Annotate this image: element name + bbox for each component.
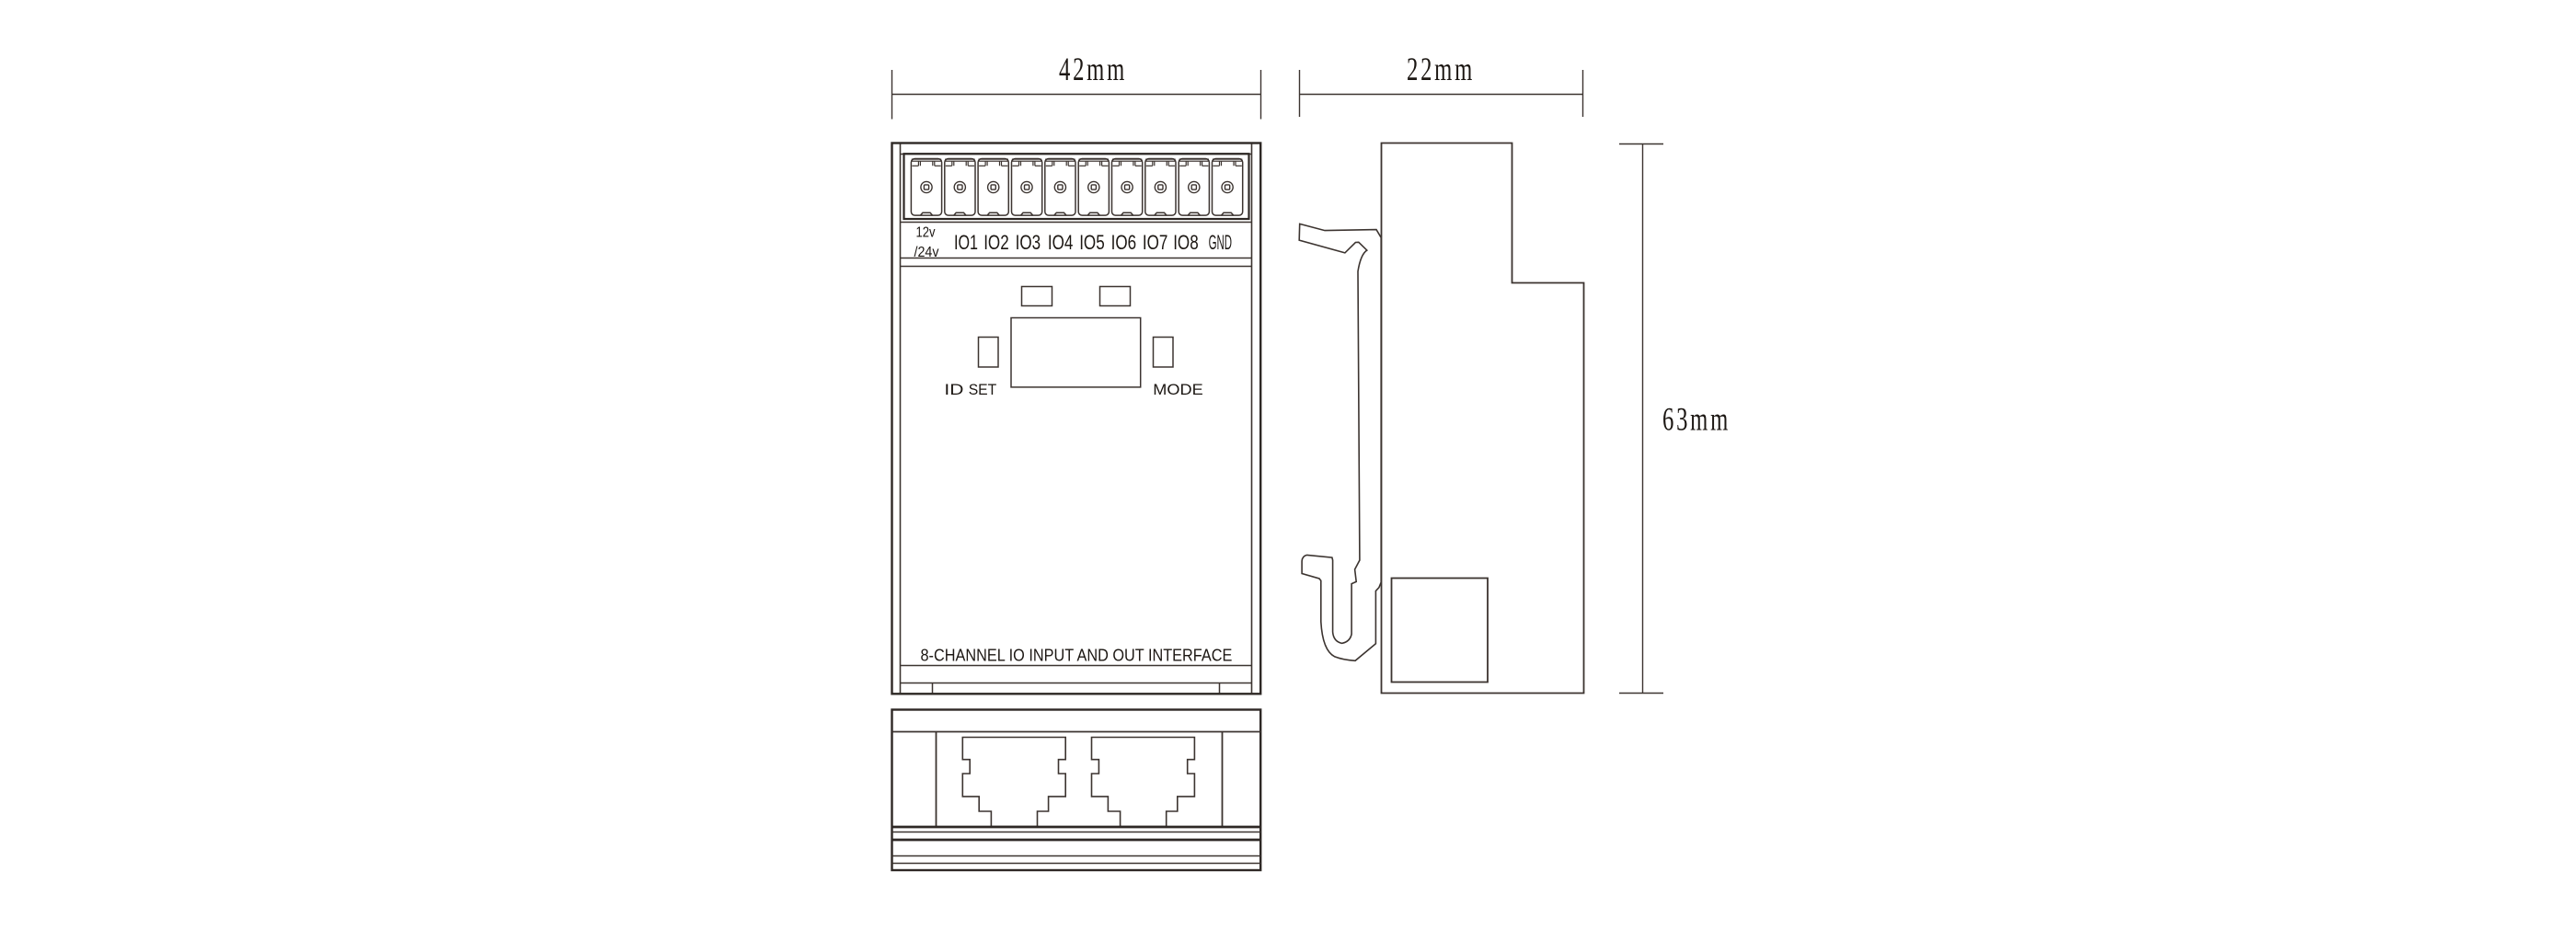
svg-text:/24v: /24v: [914, 245, 939, 260]
svg-text:SET: SET: [969, 381, 997, 398]
svg-text:22mm: 22mm: [1407, 51, 1475, 87]
svg-text:8-CHANNEL IO INPUT AND OUT INT: 8-CHANNEL IO INPUT AND OUT INTERFACE: [921, 647, 1233, 665]
svg-text:IO6: IO6: [1111, 231, 1137, 254]
svg-text:IO2: IO2: [983, 231, 1009, 254]
svg-text:IO1: IO1: [954, 231, 978, 254]
svg-text:ID: ID: [944, 381, 963, 398]
svg-text:IO7: IO7: [1143, 231, 1168, 254]
svg-text:IO4: IO4: [1048, 231, 1074, 254]
svg-text:63mm: 63mm: [1662, 401, 1731, 438]
svg-text:42mm: 42mm: [1059, 51, 1127, 87]
svg-text:IO3: IO3: [1016, 231, 1041, 254]
svg-text:IO8: IO8: [1173, 231, 1199, 254]
svg-text:12v: 12v: [916, 225, 936, 241]
svg-text:MODE: MODE: [1153, 381, 1202, 398]
svg-text:IO5: IO5: [1079, 231, 1105, 254]
svg-text:GND: GND: [1209, 231, 1233, 254]
